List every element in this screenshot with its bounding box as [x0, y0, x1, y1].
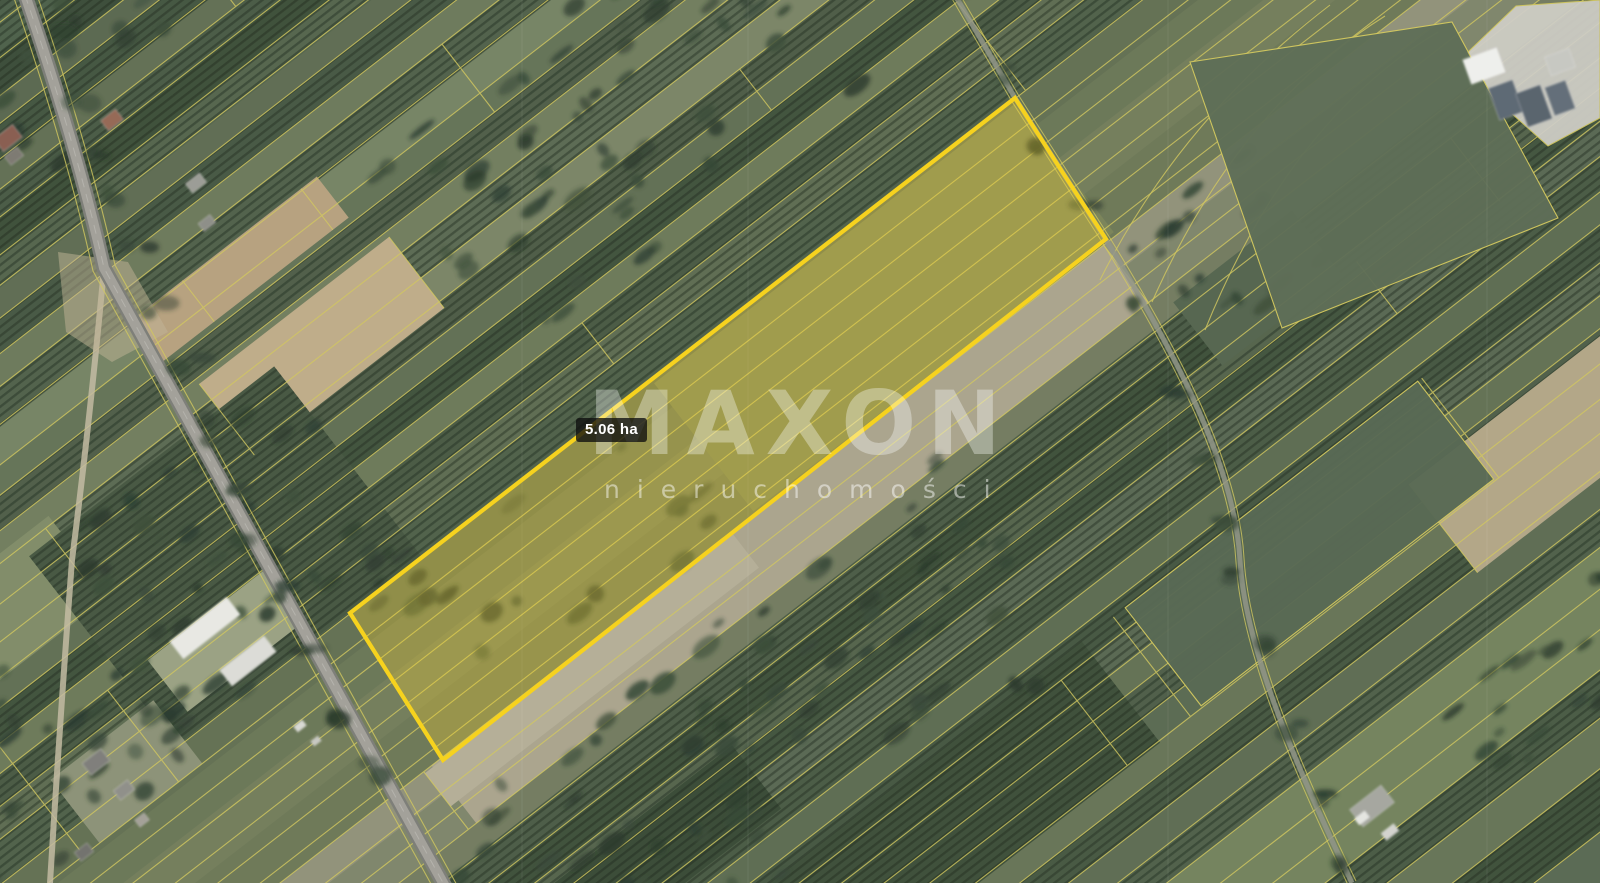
map-viewport: MAXON nieruchomości 5.06 ha [0, 0, 1600, 883]
satellite-map-canvas [0, 0, 1600, 883]
parcel-area-label: 5.06 ha [576, 418, 647, 442]
